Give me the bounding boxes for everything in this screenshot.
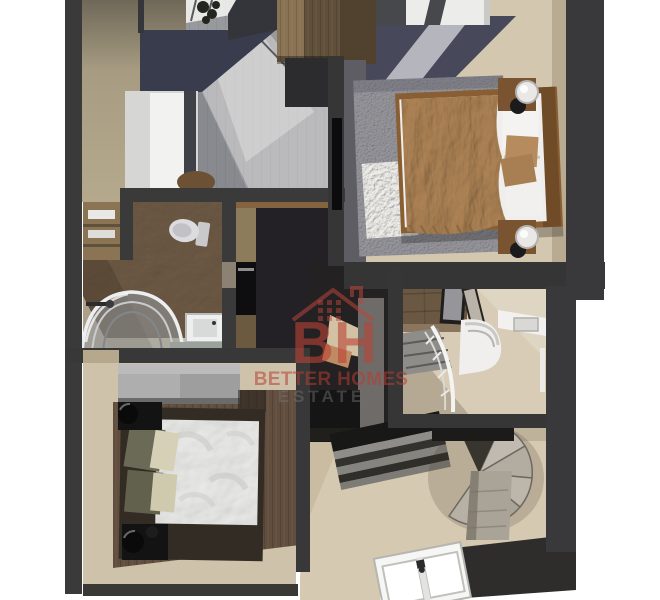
svg-text:BH: BH bbox=[291, 310, 376, 376]
svg-text:ESTATE: ESTATE bbox=[278, 387, 367, 406]
